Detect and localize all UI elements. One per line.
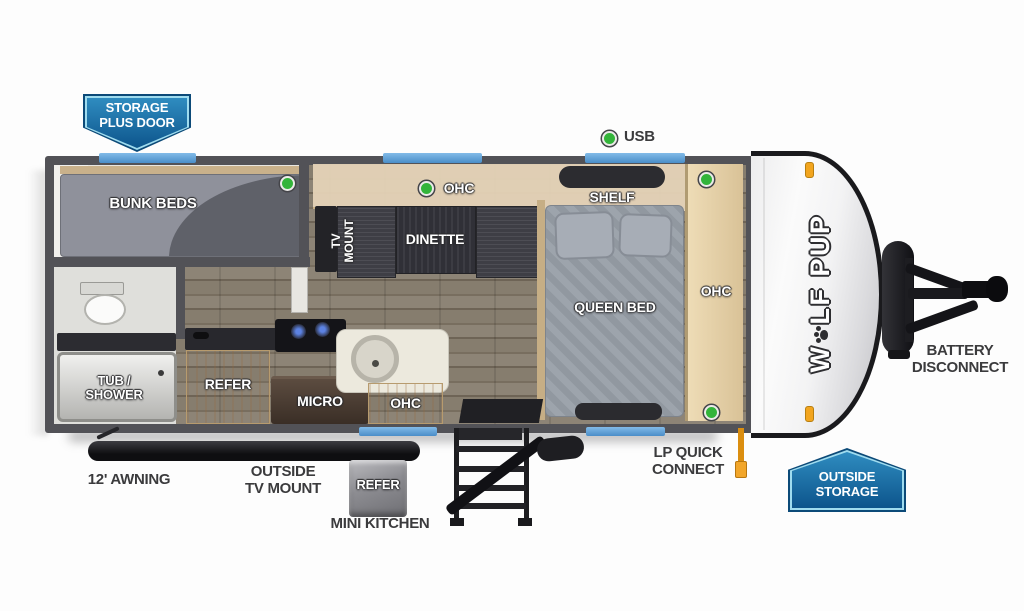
lp-line1: LP QUICK (642, 445, 734, 462)
battery-disconnect-label: BATTERY DISCONNECT (899, 343, 1021, 377)
window-bottom-bedroom (586, 427, 665, 436)
outside-refer-label: REFER (356, 477, 399, 492)
storage-plus-door-badge: STORAGE PLUS DOOR (83, 94, 191, 152)
outside-storage-badge: OUTSIDE STORAGE (788, 448, 906, 512)
bed-side-rail (537, 200, 545, 420)
refer-label: REFER (186, 377, 270, 392)
step-tread-1 (456, 446, 526, 452)
stabilizer-cylinder (536, 435, 585, 463)
mini-kitchen-label: MINI KITCHEN (328, 516, 432, 533)
hitch-tongue-bar (908, 288, 968, 299)
indicator-dot-bunk (280, 176, 295, 191)
marker-light-bottom (805, 406, 814, 422)
indicator-dot-dinette (419, 181, 434, 196)
steps-foot-right (518, 518, 532, 526)
indicator-dot-usb (602, 131, 617, 146)
wolf-pup-logo-post: LF PUP (805, 214, 835, 325)
dinette-label: DINETTE (390, 232, 480, 247)
bunk-beds-label: BUNK BEDS (98, 196, 208, 212)
wolf-pup-logo: WLF PUP (800, 188, 840, 398)
front-cap-crease (763, 158, 765, 430)
bunk-mattress (60, 174, 306, 257)
steps-foot-left (450, 518, 464, 526)
paw-print-icon (814, 327, 829, 343)
queen-bed-label: QUEEN BED (555, 300, 675, 315)
indicator-dot-bed-bottom (704, 405, 719, 420)
awning-label: 12' AWNING (74, 472, 184, 489)
pillow-right (618, 213, 672, 258)
hall-closet (291, 267, 308, 313)
toilet-icon (84, 294, 126, 325)
bunk-room-right-wall (299, 156, 309, 267)
shelf-label: SHELF (570, 190, 654, 205)
rv-floorplan-scene: BUNK BEDS TUB / SHOWER REFER MICRO OHC T… (0, 0, 1024, 611)
steps-platform (458, 428, 522, 440)
bunk-bath-divider-wall (45, 257, 310, 267)
dinette-ohc-label: OHC (441, 181, 477, 196)
window-top-front (585, 153, 685, 163)
outside-tv-line2: TV MOUNT (231, 481, 335, 498)
lp-pipe (738, 428, 744, 464)
entry-door-mat (459, 399, 543, 423)
outside-storage-line2: STORAGE (788, 485, 906, 500)
lp-connector (735, 461, 747, 478)
storage-plus-door-line2: PLUS DOOR (83, 116, 191, 131)
outside-tv-line1: OUTSIDE (231, 464, 335, 481)
bedroom-ohc-label: OHC (692, 284, 740, 299)
bed-foot-bench (575, 403, 662, 420)
bathroom-vanity (57, 333, 176, 351)
awning-bar (88, 441, 420, 461)
tub-shower-line1: TUB / (64, 374, 164, 388)
battery-line2: DISCONNECT (899, 360, 1021, 377)
outside-storage-line1: OUTSIDE (788, 470, 906, 485)
sink-bowl (351, 335, 399, 383)
tv-mount-line1: TV (330, 201, 343, 281)
window-top-center (383, 153, 482, 163)
marker-light-top (805, 162, 814, 178)
sink-faucet (372, 360, 379, 367)
lp-line2: CONNECT (642, 462, 734, 479)
outside-refer-label-wrap: REFER (349, 476, 407, 494)
cooktop-burner-left (291, 324, 306, 339)
outside-tv-mount-label: OUTSIDE TV MOUNT (231, 464, 335, 498)
hitch-ball (986, 276, 1008, 302)
toilet-tank (80, 282, 124, 295)
usb-label: USB (624, 129, 664, 146)
bathroom-right-wall (176, 267, 185, 339)
tub-shower-line2: SHOWER (64, 388, 164, 402)
shelf-bar (559, 166, 665, 188)
tv-mount-line2: MOUNT (343, 201, 356, 281)
tv-mount-label-wrap: TV MOUNT (316, 201, 376, 281)
hitch-lower-arm (904, 299, 979, 334)
window-top-rear (99, 153, 196, 163)
window-bottom-kitchen (359, 427, 437, 436)
lp-quick-connect-label: LP QUICK CONNECT (642, 445, 734, 479)
wolf-pup-logo-pre: W (805, 345, 835, 373)
tub-shower-label: TUB / SHOWER (64, 374, 164, 401)
micro-label: MICRO (271, 394, 369, 409)
storage-plus-door-line1: STORAGE (83, 101, 191, 116)
indicator-dot-bed-top (699, 172, 714, 187)
dinette-bench-right (476, 206, 540, 278)
entry-steps (448, 428, 544, 530)
bunk-trim (60, 166, 306, 174)
kitchen-faucet (193, 332, 209, 339)
cooktop-burner-right (315, 322, 330, 337)
pillow-left (554, 211, 615, 260)
battery-line1: BATTERY (899, 343, 1021, 360)
kitchen-ohc-label: OHC (368, 396, 443, 411)
